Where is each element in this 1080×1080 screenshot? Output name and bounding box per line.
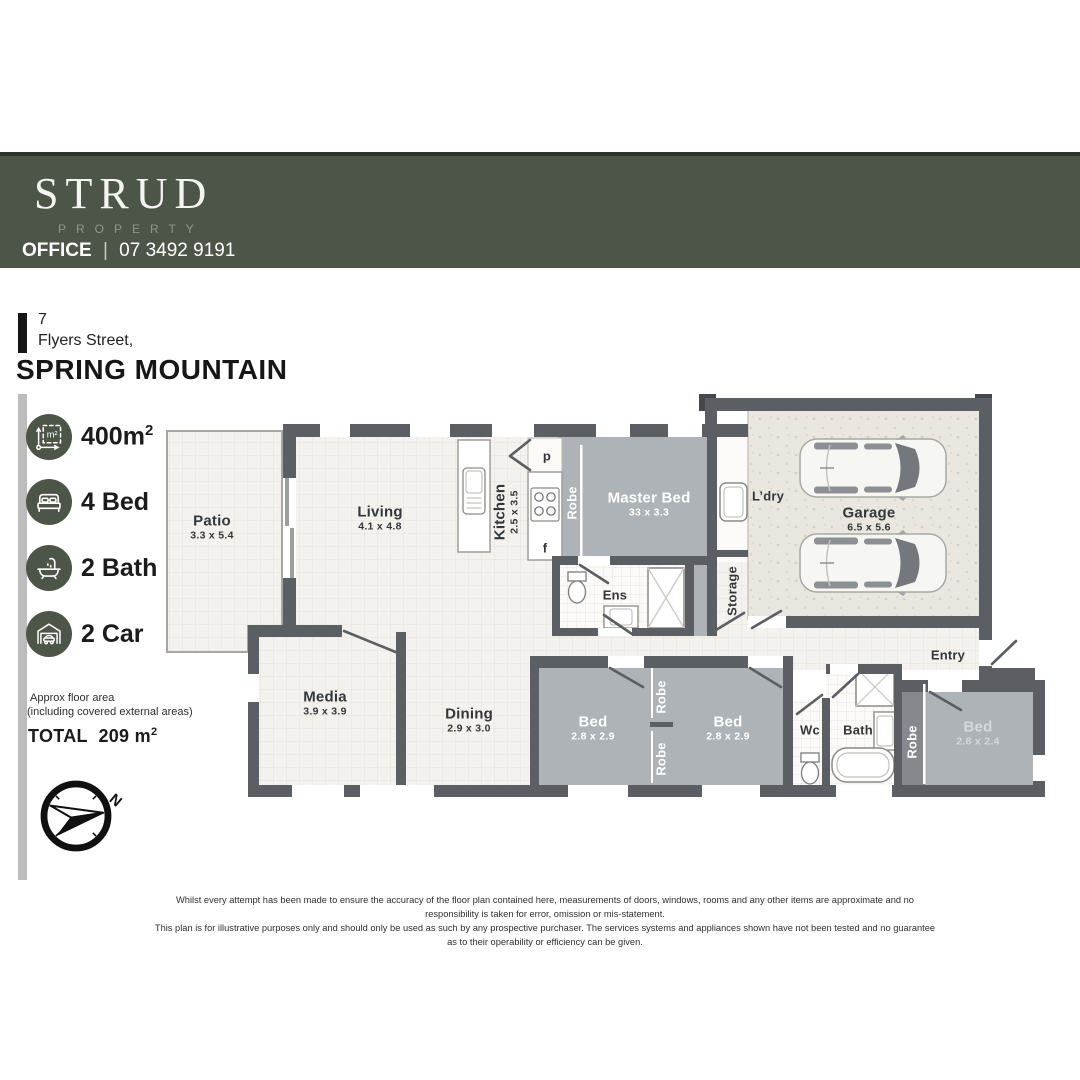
ensuite-toilet	[569, 581, 586, 603]
label-bed1: Bed2.8 x 2.9	[571, 715, 615, 744]
label-robe3: Robe	[906, 725, 921, 758]
label-patio: Patio3.3 x 5.4	[190, 514, 234, 543]
label-storage: Storage	[726, 566, 741, 616]
label-bath: Bath	[843, 724, 873, 739]
label-wc: Wc	[800, 724, 820, 739]
car-top	[800, 435, 946, 501]
wc-toilet-tank	[801, 753, 819, 762]
label-pantry: p	[543, 450, 551, 465]
flyer-canvas: STRUD PROPERTY OFFICE | 07 3492 9191 7 F…	[0, 0, 1080, 1080]
label-bed2: Bed2.8 x 2.9	[706, 715, 750, 744]
wc-toilet	[802, 762, 819, 784]
label-ensuite: Ens	[603, 589, 627, 604]
label-master-bed: Master Bed33 x 3.3	[608, 491, 691, 520]
ensuite-toilet-tank	[568, 572, 586, 581]
label-media: Media3.9 x 3.9	[303, 690, 347, 719]
label-bed3: Bed2.8 x 2.4	[956, 720, 1000, 749]
label-fridge: f	[543, 542, 548, 557]
label-dining: Dining2.9 x 3.0	[445, 707, 493, 736]
disclaimer-line-1: Whilst every attempt has been made to en…	[150, 894, 940, 922]
disclaimer-line-2: This plan is for illustrative purposes o…	[150, 922, 940, 950]
cooktop	[531, 488, 559, 521]
label-robe-bottom: Robe	[655, 742, 670, 775]
label-kitchen: Kitchen2.5 x 3.5	[493, 484, 522, 540]
label-garage: Garage6.5 x 5.6	[843, 506, 896, 535]
label-living: Living4.1 x 4.8	[357, 505, 402, 534]
label-laundry: L’dry	[752, 490, 784, 505]
label-entry: Entry	[931, 649, 965, 664]
label-robe-top: Robe	[655, 680, 670, 713]
disclaimer-text: Whilst every attempt has been made to en…	[150, 894, 940, 950]
car-bottom	[800, 530, 946, 596]
label-robe-master: Robe	[566, 486, 581, 519]
